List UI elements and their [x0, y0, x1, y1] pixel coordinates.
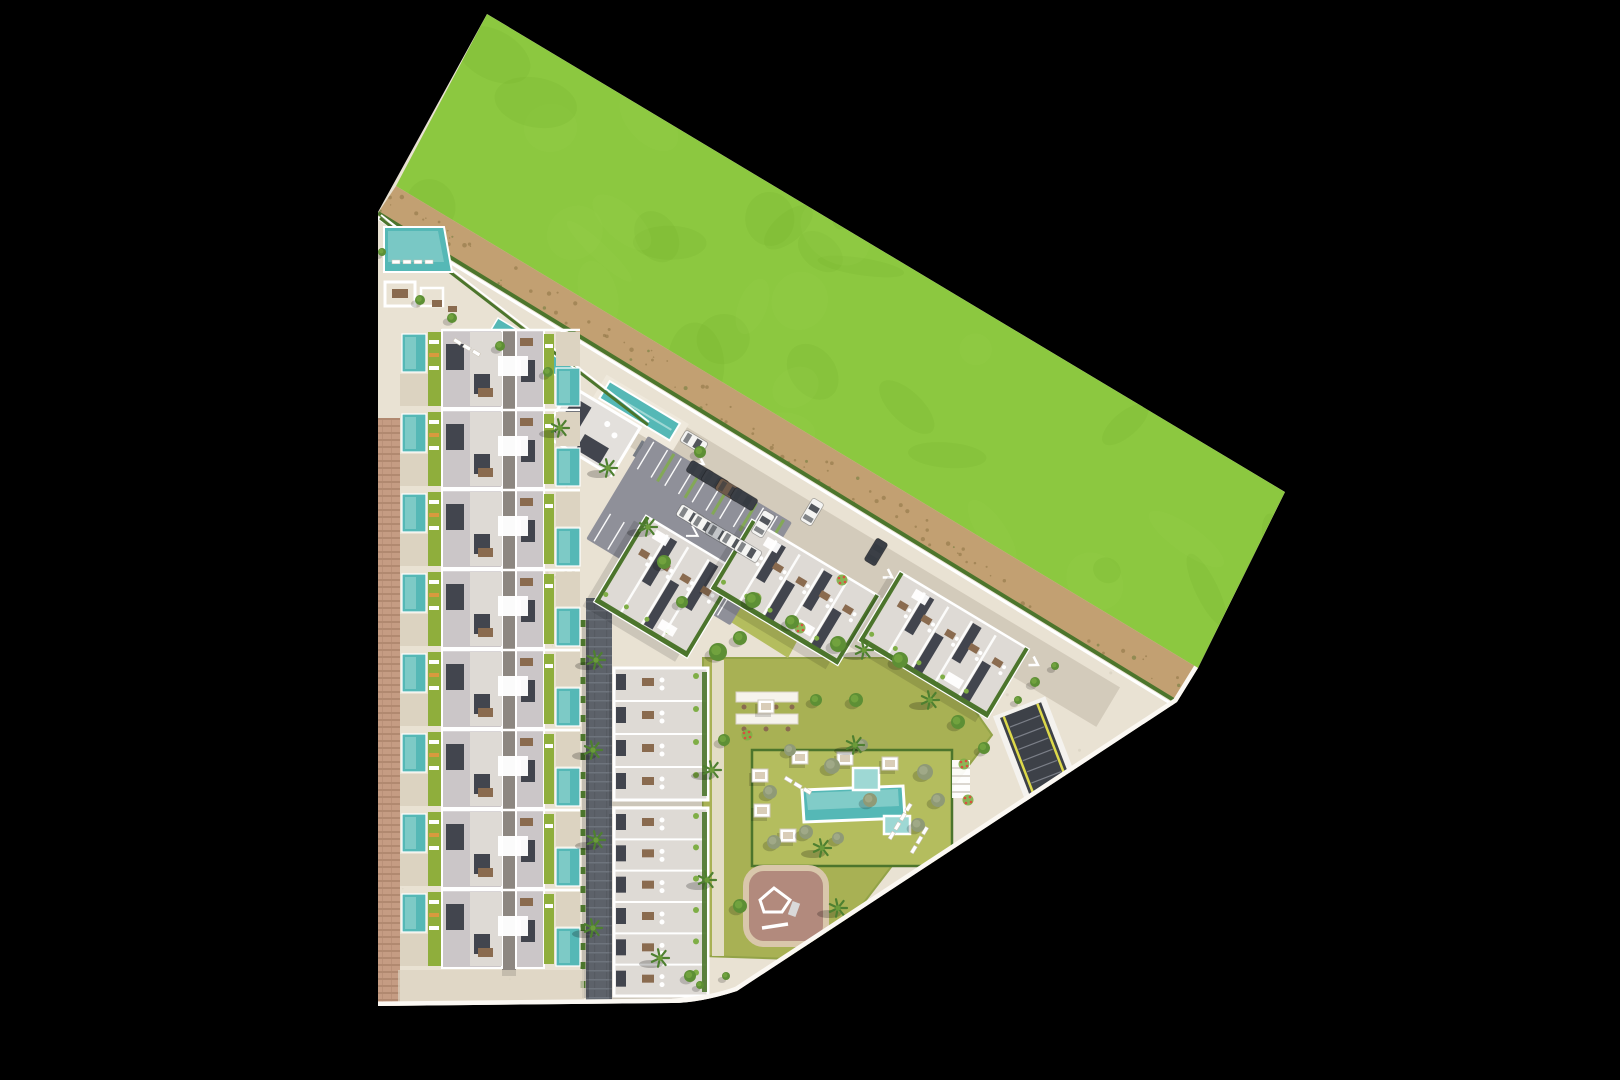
rect	[405, 657, 416, 689]
lounger	[429, 833, 439, 837]
dirt-speck	[921, 537, 925, 541]
palm-crown	[645, 524, 650, 529]
pavement-speck	[1167, 799, 1171, 803]
dirt-speck	[629, 358, 632, 361]
lounger	[545, 824, 553, 828]
terrace-table	[520, 818, 533, 826]
rect	[556, 332, 580, 366]
dirt-speck	[451, 236, 453, 238]
pavement-speck	[981, 851, 984, 854]
dirt-speck	[928, 543, 931, 546]
rect	[556, 812, 580, 846]
palm-crown	[927, 697, 932, 702]
circle	[826, 760, 835, 769]
rect	[559, 611, 570, 643]
bridge	[498, 916, 528, 936]
grass-blob	[1204, 297, 1289, 319]
bridge	[498, 356, 528, 376]
lounger	[429, 846, 439, 850]
pavement-speck	[402, 888, 403, 889]
rect	[556, 732, 580, 766]
circle	[965, 802, 968, 805]
circle	[660, 719, 665, 724]
dirt-speck	[751, 432, 754, 435]
grass-blob	[1128, 360, 1175, 406]
lounger	[429, 366, 439, 370]
circle	[660, 849, 665, 854]
rect	[559, 451, 570, 483]
grass-blob	[922, 237, 986, 285]
rect	[556, 892, 580, 926]
terrace-table	[520, 898, 533, 906]
rect	[556, 572, 580, 606]
circle	[966, 765, 969, 768]
dirt-speck	[547, 291, 551, 295]
rect	[405, 897, 416, 929]
shrub	[693, 706, 699, 712]
pool-steps-wing	[853, 768, 879, 790]
circle	[720, 736, 727, 743]
circle	[735, 633, 743, 641]
circle	[748, 731, 751, 734]
grass-blob	[1102, 334, 1138, 389]
rect	[400, 454, 428, 486]
circle	[832, 638, 841, 647]
dirt-speck	[794, 459, 797, 462]
dirt-speck	[1097, 644, 1100, 647]
circle	[843, 576, 846, 579]
flower-bed	[963, 795, 974, 806]
lounger	[429, 766, 439, 770]
dirt-speck	[946, 541, 950, 545]
terrace-table	[520, 338, 533, 346]
lounger	[429, 753, 439, 757]
dirt-speck	[647, 350, 650, 353]
pavement-speck	[1085, 300, 1087, 302]
dirt-speck	[623, 342, 625, 344]
circle	[953, 717, 961, 725]
tree-shadow	[895, 908, 908, 917]
roof-stairwell	[446, 904, 464, 930]
terrace-table	[478, 468, 493, 477]
palm-crown	[852, 742, 857, 747]
circle	[786, 746, 793, 753]
circle	[749, 736, 752, 739]
circle	[1031, 678, 1037, 684]
grass-blob	[890, 48, 988, 143]
lounger	[429, 606, 439, 610]
dirt-speck	[653, 356, 655, 358]
circle	[797, 630, 800, 633]
rect	[559, 371, 570, 403]
rect	[400, 854, 428, 886]
grass-blob	[1240, 216, 1291, 264]
shrub	[693, 844, 699, 850]
circle	[765, 787, 773, 795]
grass-blob	[699, 77, 752, 114]
terrace-table	[642, 943, 654, 951]
circle	[660, 785, 665, 790]
circle	[678, 598, 685, 605]
dirt-speck	[965, 561, 968, 564]
dirt-speck	[447, 230, 449, 232]
rect	[783, 832, 793, 839]
circle	[969, 796, 972, 799]
rect	[400, 614, 428, 646]
lounger	[545, 664, 553, 668]
circle	[660, 678, 665, 683]
circle	[660, 752, 665, 757]
pavement-speck	[1043, 282, 1046, 285]
roof-stairwell	[446, 344, 464, 370]
circle	[970, 801, 973, 804]
dirt-speck	[875, 499, 879, 503]
terrace-table	[642, 975, 654, 983]
circle	[839, 582, 842, 585]
circle	[964, 797, 967, 800]
dirt-speck	[701, 385, 705, 389]
tree	[895, 902, 911, 917]
circle	[901, 904, 908, 911]
shrub	[693, 907, 699, 913]
circle	[980, 744, 987, 751]
dirt-speck	[962, 547, 965, 550]
circle	[660, 744, 665, 749]
circle	[894, 654, 903, 663]
roof-stairwell	[446, 424, 464, 450]
grass-blob	[788, 57, 862, 154]
grass-blob	[1151, 221, 1204, 275]
pavement-speck	[1165, 306, 1167, 308]
circle	[864, 918, 871, 925]
grass-blob	[1242, 325, 1274, 371]
lounger	[545, 344, 553, 348]
palm-crown	[704, 877, 709, 882]
dirt-speck	[953, 546, 955, 548]
bridge	[498, 516, 528, 536]
circle	[379, 249, 383, 253]
dirt-speck	[830, 461, 834, 465]
terrace-table	[642, 849, 654, 857]
dirt-speck	[725, 420, 728, 423]
grass-blob	[956, 112, 1034, 172]
stairwell	[616, 814, 626, 830]
circle	[963, 795, 974, 806]
dirt-speck	[1145, 655, 1147, 657]
dirt-speck	[1132, 655, 1136, 659]
lounger	[429, 446, 439, 450]
lounger	[429, 900, 439, 904]
grass-blob	[1022, 78, 1093, 141]
circle	[660, 826, 665, 831]
circle	[862, 916, 874, 928]
circle	[448, 314, 454, 320]
lounger	[414, 260, 422, 264]
roof-stairwell	[446, 744, 464, 770]
lounger	[429, 926, 439, 930]
circle	[660, 818, 665, 823]
dirt-speck	[1176, 676, 1179, 679]
site-plan-rendering	[0, 0, 1620, 1080]
dirt-speck	[565, 322, 568, 325]
circle	[1052, 663, 1056, 667]
dirt-speck	[587, 320, 590, 323]
terrace-table	[520, 498, 533, 506]
roof-stairwell	[446, 504, 464, 530]
circle	[496, 342, 502, 348]
rect	[761, 703, 771, 710]
grass-blob	[1167, 288, 1214, 329]
pavement-speck	[797, 984, 799, 986]
lounger	[545, 744, 553, 748]
lounger	[392, 260, 400, 264]
circle	[697, 982, 701, 986]
circle	[416, 296, 422, 302]
rect	[559, 691, 570, 723]
rect	[795, 754, 805, 761]
roof-stairwell	[446, 584, 464, 610]
palm-crown	[835, 905, 840, 910]
circle	[686, 972, 693, 979]
lounger	[425, 260, 433, 264]
circle	[735, 901, 743, 909]
apartment-block	[609, 668, 708, 806]
rect	[405, 497, 416, 529]
circle	[769, 837, 777, 845]
terrace-table	[478, 628, 493, 637]
stairwell	[616, 707, 626, 723]
terrace-table	[520, 418, 533, 426]
rect	[559, 531, 570, 563]
lounger	[545, 504, 553, 508]
terrace-table	[642, 881, 654, 889]
circle	[711, 645, 721, 655]
dirt-speck	[825, 461, 828, 464]
rect	[840, 755, 850, 762]
lounger	[403, 260, 411, 264]
terrace-table	[642, 711, 654, 719]
circle	[660, 711, 665, 716]
circle	[660, 920, 665, 925]
terrace-table	[642, 912, 654, 920]
terrace-table	[478, 388, 493, 397]
flower-bed	[959, 759, 970, 770]
circle	[660, 974, 665, 979]
terrace-table	[520, 658, 533, 666]
dirt-speck	[414, 211, 418, 215]
circle	[747, 594, 756, 603]
lounger	[429, 913, 439, 917]
dirt-speck	[629, 348, 633, 352]
flower-bed	[837, 575, 848, 586]
terrace-table	[642, 678, 654, 686]
grass-blob	[1250, 105, 1302, 166]
palm-crown	[590, 925, 595, 930]
rect	[559, 771, 570, 803]
pavement-speck	[1057, 944, 1060, 947]
dirt-speck	[390, 204, 391, 205]
south-deck	[398, 970, 584, 1002]
palm-crown	[657, 955, 662, 960]
grass-blob	[1002, 169, 1073, 230]
roof-stairwell	[446, 664, 464, 690]
circle	[660, 943, 665, 948]
lounger	[429, 353, 439, 357]
shrub	[693, 739, 699, 745]
pavement-speck	[1148, 342, 1151, 345]
stairwell	[616, 908, 626, 924]
rect	[400, 774, 428, 806]
rect	[405, 737, 416, 769]
circle	[696, 448, 703, 455]
circle	[802, 629, 805, 632]
circle	[660, 880, 665, 885]
circle	[961, 766, 964, 769]
palm-crown	[819, 845, 824, 850]
lounger	[429, 340, 439, 344]
dirt-speck	[462, 243, 467, 248]
pavement-speck	[1152, 329, 1154, 331]
rect	[755, 772, 765, 779]
palm-crown	[590, 747, 595, 752]
grass-blob	[1227, 203, 1306, 271]
rect	[885, 760, 895, 767]
circle	[1015, 697, 1019, 701]
dirt-speck	[684, 386, 688, 390]
dirt-speck	[1029, 605, 1032, 608]
terrace-table	[478, 788, 493, 797]
pavement-speck	[1031, 986, 1034, 989]
dirt-speck	[449, 237, 450, 238]
dirt-speck	[543, 306, 546, 309]
circle	[660, 982, 665, 987]
circle	[913, 820, 921, 828]
pavement-speck	[1006, 693, 1009, 696]
stairwell	[616, 939, 626, 955]
rect	[405, 417, 416, 449]
dirt-speck	[422, 218, 424, 220]
communal-corner-pool-shallow	[388, 231, 444, 262]
dirt-speck	[899, 503, 903, 507]
dirt-speck	[957, 552, 959, 554]
lounger	[545, 904, 553, 908]
circle	[723, 973, 727, 977]
circle	[834, 834, 841, 841]
stairwell	[616, 740, 626, 756]
circle	[744, 737, 747, 740]
circle	[660, 857, 665, 862]
dirt-speck	[400, 195, 405, 200]
dirt-speck	[1003, 579, 1006, 582]
circle	[844, 581, 847, 584]
lounger	[545, 584, 553, 588]
dirt-speck	[554, 311, 558, 315]
terrace-table	[478, 948, 493, 957]
terrace-table	[520, 738, 533, 746]
pavement-speck	[874, 978, 877, 981]
rect	[559, 931, 570, 963]
palm-crown	[557, 425, 562, 430]
rect	[400, 534, 428, 566]
hedge-strip	[702, 812, 707, 992]
stairwell	[616, 877, 626, 893]
terrace-table	[478, 548, 493, 557]
rect	[757, 807, 767, 814]
grass-blob	[843, 95, 894, 155]
dirt-speck	[651, 359, 654, 362]
circle	[965, 760, 968, 763]
rect	[400, 694, 428, 726]
circle	[787, 617, 795, 625]
lounger	[429, 686, 439, 690]
circle	[899, 902, 911, 914]
rect	[400, 374, 428, 406]
dirt-speck	[573, 301, 577, 305]
circle	[660, 686, 665, 691]
circle	[801, 624, 804, 627]
rect	[405, 577, 416, 609]
stairwell	[616, 845, 626, 861]
rect	[405, 337, 416, 369]
lounger	[429, 673, 439, 677]
lounger	[429, 660, 439, 664]
stairwell	[616, 971, 626, 987]
dirt-speck	[651, 350, 653, 352]
pavement-speck	[877, 917, 880, 920]
circle	[933, 795, 941, 803]
palm-crown	[593, 657, 598, 662]
lounger	[429, 526, 439, 530]
lounger	[429, 513, 439, 517]
bridge	[498, 836, 528, 856]
dirt-speck	[666, 360, 668, 362]
pavement-speck	[922, 234, 925, 237]
dirt-speck	[1121, 649, 1125, 653]
circle	[851, 695, 859, 703]
lounger	[429, 593, 439, 597]
bridge	[498, 676, 528, 696]
palm-crown	[605, 465, 610, 470]
dirt-speck	[895, 515, 898, 518]
dirt-speck	[926, 528, 929, 531]
lounger	[429, 433, 439, 437]
central-spine	[502, 330, 516, 976]
dirt-speck	[1087, 639, 1090, 642]
lounger	[429, 820, 439, 824]
dirt-speck	[720, 418, 722, 420]
dirt-speck	[674, 386, 676, 388]
pavement-speck	[1121, 301, 1124, 304]
circle	[919, 766, 928, 775]
terrace-table	[520, 578, 533, 586]
circle	[659, 557, 667, 565]
street-shadow	[582, 620, 589, 998]
tree	[858, 916, 874, 931]
dirt-speck	[425, 217, 427, 219]
grass-blob	[832, 64, 898, 128]
circle	[742, 730, 753, 741]
rect	[405, 817, 416, 849]
circle	[837, 575, 848, 586]
lounger	[429, 500, 439, 504]
garden-path	[712, 660, 724, 956]
dirt-speck	[705, 385, 709, 389]
pavement-speck	[803, 971, 806, 974]
dirt-speck	[752, 428, 754, 430]
shrub	[693, 938, 699, 944]
circle	[660, 888, 665, 893]
palm-crown	[709, 767, 714, 772]
